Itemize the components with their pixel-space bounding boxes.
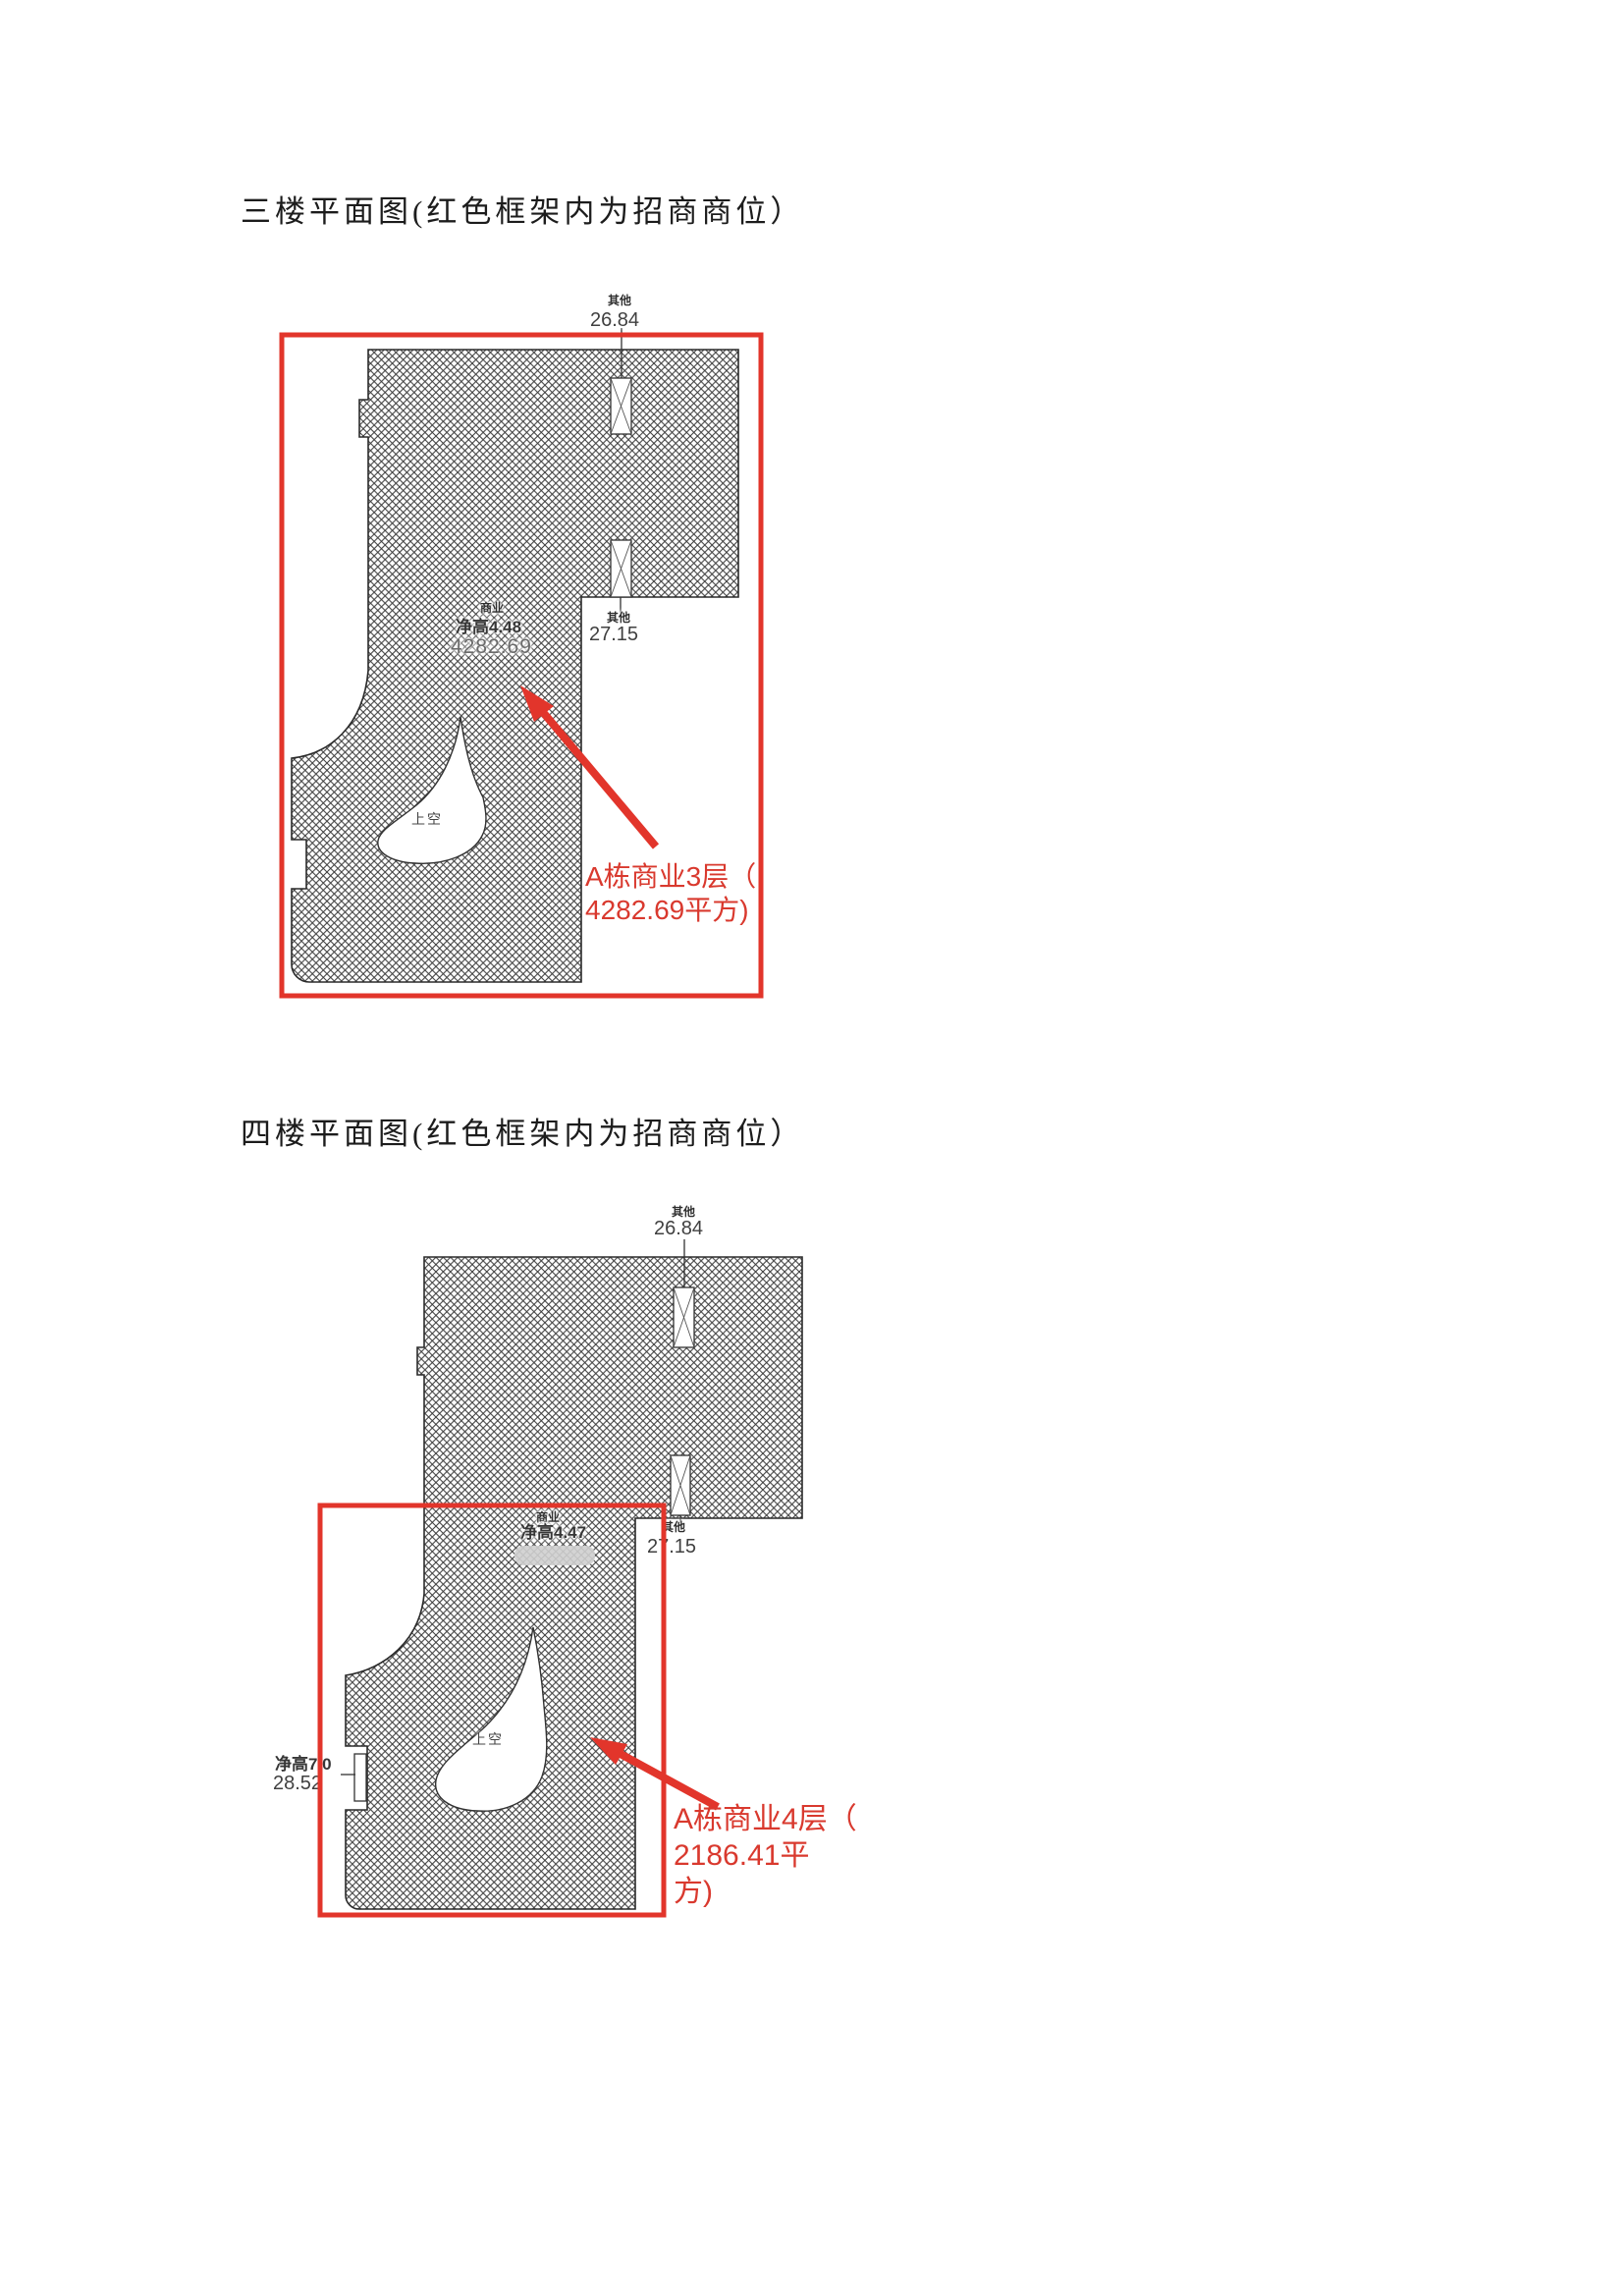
callout-4f-line1: A栋商业4层（ xyxy=(674,1801,857,1837)
callout-3f: A栋商业3层（ 4282.69平方) xyxy=(585,860,756,927)
page: { "colors": { "accent_red": "#e2352b", "… xyxy=(0,0,1623,2296)
callout-arrow-3f xyxy=(520,685,656,847)
callout-4f-line3: 方) xyxy=(674,1874,857,1910)
callout-4f: A栋商业4层（ 2186.41平 方) xyxy=(674,1801,857,1910)
red-frame-4f xyxy=(320,1505,664,1915)
annotation-overlay xyxy=(0,0,1623,2296)
callout-arrow-4f xyxy=(590,1737,718,1807)
callout-3f-line1: A栋商业3层（ xyxy=(585,860,756,894)
callout-3f-line2: 4282.69平方) xyxy=(585,894,756,927)
callout-4f-line2: 2186.41平 xyxy=(674,1837,857,1874)
